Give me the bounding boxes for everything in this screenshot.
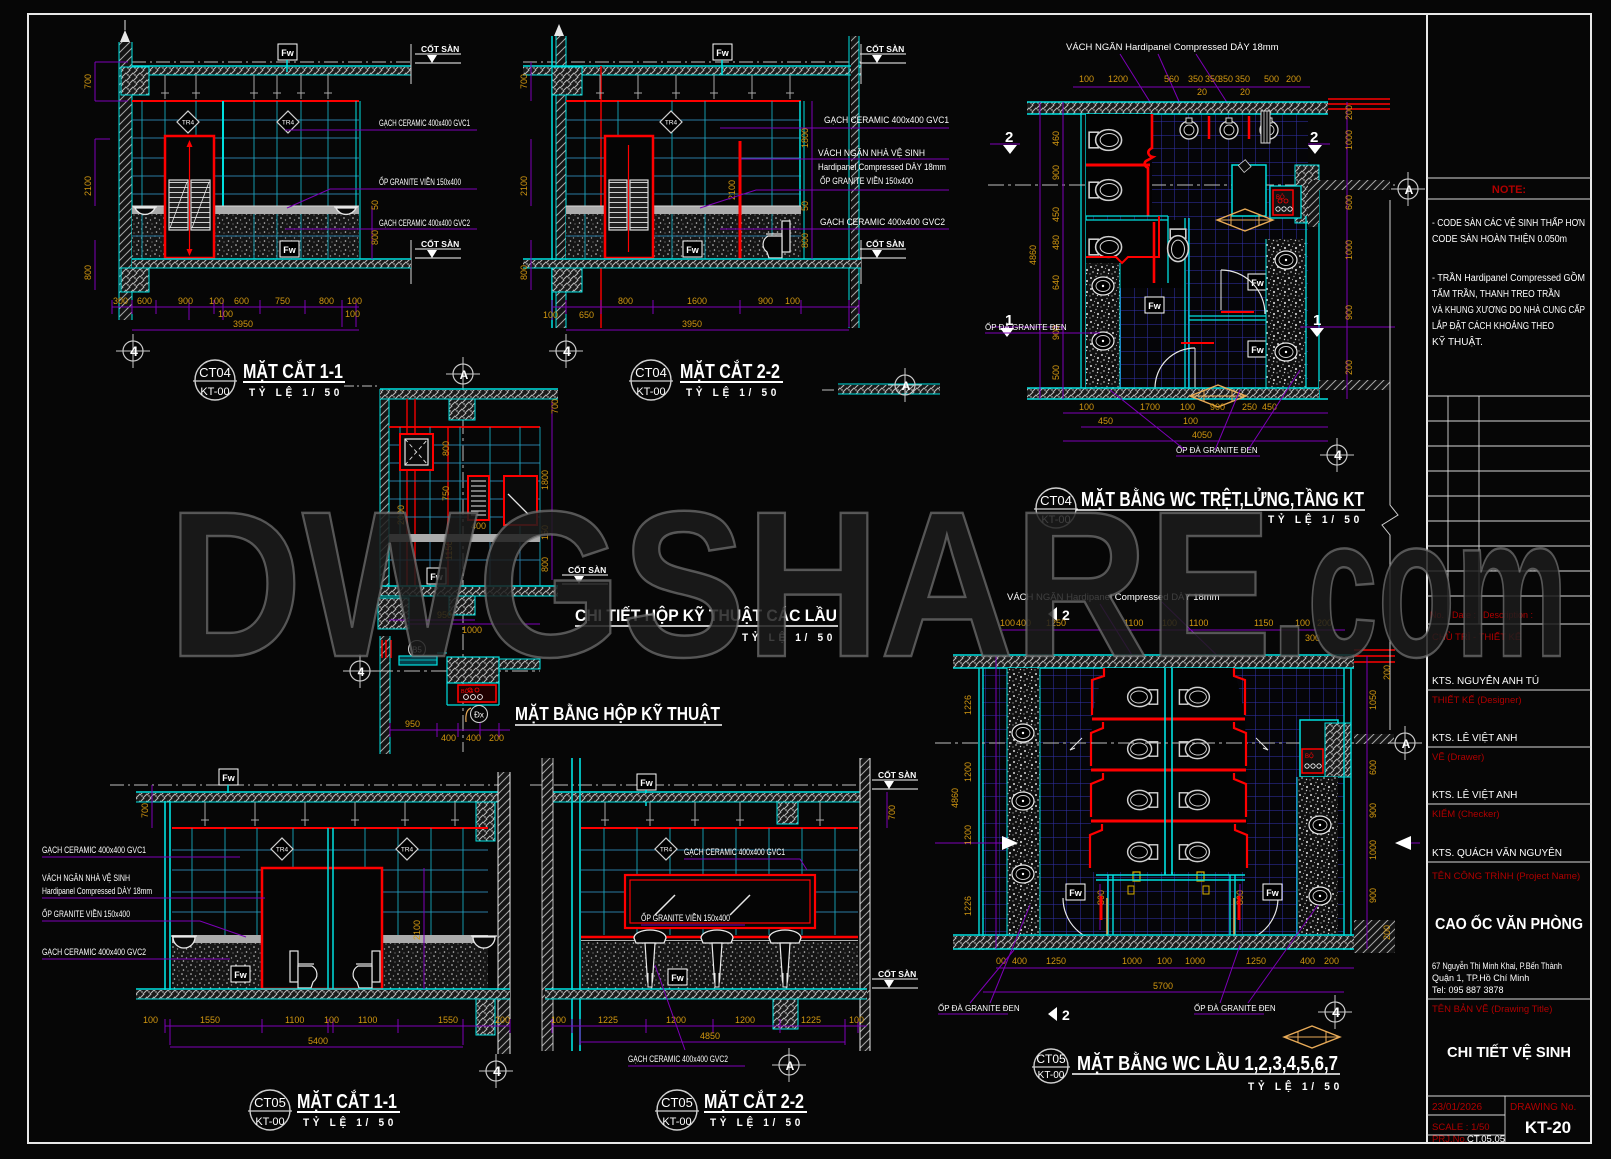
svg-text:700: 700: [140, 803, 150, 818]
svg-text:700: 700: [519, 74, 529, 89]
svg-text:ỐP ĐÀ GRANITE ĐEN: ỐP ĐÀ GRANITE ĐEN: [985, 322, 1067, 332]
svg-text:5700: 5700: [1153, 981, 1173, 991]
svg-text:400: 400: [1300, 956, 1315, 966]
svg-text:900: 900: [758, 296, 773, 306]
svg-text:PRJ.No.: PRJ.No.: [1432, 1134, 1467, 1145]
svg-text:100: 100: [1157, 956, 1172, 966]
svg-text:MẶT BẰNG HỘP KỸ THUẬT: MẶT BẰNG HỘP KỸ THUẬT: [515, 703, 720, 724]
svg-text:900: 900: [1344, 305, 1354, 320]
svg-text:200: 200: [1344, 360, 1354, 375]
svg-text:ỐP GRANITE VIỀN 150x400: ỐP GRANITE VIỀN 150x400: [820, 175, 913, 187]
svg-text:1000: 1000: [1368, 840, 1378, 860]
svg-text:100: 100: [785, 296, 800, 306]
svg-text:200: 200: [1382, 925, 1392, 940]
svg-text:250: 250: [1242, 402, 1257, 412]
svg-text:A: A: [902, 379, 911, 393]
svg-text:TỶ LỆ 1/ 50: TỶ LỆ 1/ 50: [1248, 1080, 1343, 1093]
svg-text:700: 700: [550, 399, 560, 414]
svg-text:BỘ: BỘ: [1305, 753, 1314, 760]
svg-text:20: 20: [1240, 87, 1250, 97]
svg-text:MẶT CẮT 1-1: MẶT CẮT 1-1: [243, 359, 343, 383]
svg-text:1200: 1200: [963, 825, 973, 845]
svg-text:500: 500: [1051, 365, 1061, 380]
svg-text:1800: 1800: [800, 128, 810, 148]
svg-text:1226: 1226: [963, 896, 973, 916]
svg-text:BỘ: BỘ: [1276, 194, 1285, 201]
svg-text:500: 500: [1264, 74, 1279, 84]
svg-text:KT-00: KT-00: [1038, 1070, 1065, 1081]
svg-text:900: 900: [1051, 165, 1061, 180]
svg-text:VÁCH NGĂN NHÀ VỆ SINH: VÁCH NGĂN NHÀ VỆ SINH: [42, 873, 130, 884]
svg-text:100: 100: [143, 1015, 158, 1025]
svg-text:900: 900: [1368, 803, 1378, 818]
svg-text:200: 200: [495, 1015, 510, 1025]
svg-text:2: 2: [1062, 1007, 1070, 1023]
svg-text:350: 350: [1218, 74, 1233, 84]
svg-text:VÁCH NGĂN Hardipanel Compresse: VÁCH NGĂN Hardipanel Compressed DÀY 18mm: [1066, 42, 1279, 53]
svg-text:KT-00: KT-00: [636, 386, 665, 398]
svg-text:450: 450: [1262, 402, 1277, 412]
svg-text:400: 400: [466, 733, 481, 743]
svg-text:800: 800: [83, 265, 93, 280]
svg-text:NOTE:: NOTE:: [1492, 184, 1526, 196]
svg-text:400: 400: [1012, 956, 1027, 966]
svg-text:GẠCH CERAMIC 400x400 GVC1: GẠCH CERAMIC 400x400 GVC1: [379, 118, 470, 129]
svg-text:1600: 1600: [687, 296, 707, 306]
svg-text:700: 700: [887, 805, 897, 820]
svg-text:VÀ KHUNG XƯƠNG DO NHÀ CUNG CẤP: VÀ KHUNG XƯƠNG DO NHÀ CUNG CẤP: [1432, 303, 1585, 316]
svg-text:ỐP GRANITE VIỀN 150x400: ỐP GRANITE VIỀN 150x400: [641, 912, 730, 924]
svg-text:ỐP GRANITE VIỀN 150x400: ỐP GRANITE VIỀN 150x400: [42, 908, 130, 920]
svg-text:A: A: [1405, 183, 1414, 197]
svg-text:GẠCH CERAMIC 400x400 GVC2: GẠCH CERAMIC 400x400 GVC2: [628, 1054, 728, 1065]
svg-text:900: 900: [1368, 888, 1378, 903]
svg-text:TẤM TRẦN, THANH TREO TRẦN: TẤM TRẦN, THANH TREO TRẦN: [1432, 287, 1560, 300]
svg-text:200: 200: [1324, 956, 1339, 966]
svg-text:100: 100: [347, 296, 362, 306]
svg-text:200: 200: [1344, 105, 1354, 120]
svg-text:480: 480: [1051, 235, 1061, 250]
svg-text:4860: 4860: [1028, 245, 1038, 265]
svg-text:ỐP GRANITE VIỀN 150x400: ỐP GRANITE VIỀN 150x400: [379, 176, 461, 188]
svg-text:Hardipanel Compressed DÀY 18mm: Hardipanel Compressed DÀY 18mm: [42, 886, 152, 897]
svg-text:560: 560: [1164, 74, 1179, 84]
svg-text:2100: 2100: [83, 176, 93, 196]
svg-text:100: 100: [218, 309, 233, 319]
svg-text:VÁCH NGĂN NHÀ VỆ SINH: VÁCH NGĂN NHÀ VỆ SINH: [818, 148, 925, 159]
svg-text:1250: 1250: [1046, 956, 1066, 966]
svg-text:100: 100: [209, 296, 224, 306]
svg-text:.com: .com: [1272, 476, 1568, 699]
svg-text:640: 640: [1051, 275, 1061, 290]
svg-text:4: 4: [493, 1063, 501, 1079]
svg-text:MẶT CẮT 2-2: MẶT CẮT 2-2: [680, 359, 780, 383]
svg-text:4: 4: [563, 343, 571, 359]
svg-text:TỶ LỆ 1/ 50: TỶ LỆ 1/ 50: [303, 1116, 397, 1129]
svg-text:4: 4: [130, 343, 138, 359]
svg-text:- TRẦN Hardipanel Compressed G: - TRẦN Hardipanel Compressed GỒM: [1432, 271, 1585, 284]
svg-text:GẠCH CERAMIC 400x400 GVC1: GẠCH CERAMIC 400x400 GVC1: [684, 847, 785, 858]
svg-text:800: 800: [618, 296, 633, 306]
svg-text:3950: 3950: [682, 319, 702, 329]
svg-text:650: 650: [579, 310, 594, 320]
svg-text:800: 800: [441, 441, 451, 456]
svg-text:CT.05.05: CT.05.05: [1467, 1134, 1505, 1145]
svg-text:ỐP ĐÀ GRANITE ĐEN: ỐP ĐÀ GRANITE ĐEN: [1194, 1003, 1276, 1013]
svg-text:A: A: [786, 1059, 795, 1073]
svg-text:KT-00: KT-00: [662, 1116, 691, 1128]
svg-text:KTS. LÊ VIỆT ANH: KTS. LÊ VIỆT ANH: [1432, 788, 1517, 801]
svg-text:KT-20: KT-20: [1525, 1118, 1571, 1137]
svg-text:100: 100: [345, 309, 360, 319]
svg-text:800: 800: [319, 296, 334, 306]
svg-text:1225: 1225: [801, 1015, 821, 1025]
svg-text:DWGSHARE: DWGSHARE: [168, 469, 1272, 701]
svg-text:600: 600: [137, 296, 152, 306]
svg-text:460: 460: [1051, 131, 1061, 146]
svg-text:100: 100: [543, 310, 558, 320]
svg-text:800: 800: [800, 233, 810, 248]
svg-text:600: 600: [1344, 195, 1354, 210]
svg-text:MẶT CẮT 2-2: MẶT CẮT 2-2: [704, 1089, 804, 1113]
svg-text:2100: 2100: [412, 920, 422, 940]
svg-text:- CODE SÀN CÁC VỆ SINH THẤP HƠ: - CODE SÀN CÁC VỆ SINH THẤP HƠN: [1432, 216, 1585, 229]
svg-text:450: 450: [1098, 416, 1113, 426]
svg-text:2100: 2100: [519, 176, 529, 196]
svg-text:TỶ LỆ 1/ 50: TỶ LỆ 1/ 50: [249, 386, 343, 399]
svg-text:800: 800: [519, 265, 529, 280]
svg-text:GẠCH CERAMIC 400x400 GVC2: GẠCH CERAMIC 400x400 GVC2: [820, 217, 945, 228]
svg-text:750: 750: [275, 296, 290, 306]
svg-text:KIỂM (Checker): KIỂM (Checker): [1432, 808, 1500, 820]
svg-text:CHI TIẾT VỆ SINH: CHI TIẾT VỆ SINH: [1447, 1043, 1571, 1061]
svg-text:1200: 1200: [735, 1015, 755, 1025]
svg-text:A: A: [460, 368, 469, 382]
svg-text:100: 100: [1079, 74, 1094, 84]
svg-text:100: 100: [1183, 416, 1198, 426]
svg-text:KT-00: KT-00: [255, 1116, 284, 1128]
svg-text:MẶT CẮT 1-1: MẶT CẮT 1-1: [297, 1089, 397, 1113]
svg-text:50: 50: [370, 200, 380, 210]
svg-text:4: 4: [1332, 1004, 1340, 1020]
svg-text:1250: 1250: [1246, 956, 1266, 966]
svg-text:3950: 3950: [233, 319, 253, 329]
svg-text:450: 450: [1051, 207, 1061, 222]
svg-text:TỶ LỆ 1/ 50: TỶ LỆ 1/ 50: [686, 386, 780, 399]
svg-text:A: A: [1402, 737, 1411, 751]
svg-text:DRAWING No.: DRAWING No.: [1510, 1102, 1576, 1113]
svg-text:1225: 1225: [598, 1015, 618, 1025]
svg-text:100: 100: [324, 1015, 339, 1025]
svg-text:300: 300: [113, 296, 128, 306]
svg-text:4860: 4860: [950, 788, 960, 808]
svg-text:200: 200: [1286, 74, 1301, 84]
svg-text:CT05: CT05: [1036, 1052, 1066, 1066]
svg-text:700: 700: [83, 74, 93, 89]
svg-text:900: 900: [178, 296, 193, 306]
svg-text:KỸ THUẬT.: KỸ THUẬT.: [1432, 335, 1483, 348]
svg-text:50: 50: [800, 201, 810, 211]
svg-text:Đx: Đx: [474, 711, 484, 720]
svg-text:67 Nguyễn Thị Minh Khai, P.Bến: 67 Nguyễn Thị Minh Khai, P.Bến Thành: [1432, 961, 1562, 971]
svg-text:950: 950: [405, 719, 420, 729]
svg-text:2: 2: [1005, 129, 1013, 146]
svg-text:CT04: CT04: [199, 365, 231, 380]
svg-text:1100: 1100: [285, 1015, 304, 1025]
svg-text:ỐP ĐÀ GRANITE ĐEN: ỐP ĐÀ GRANITE ĐEN: [938, 1003, 1020, 1013]
svg-text:4050: 4050: [1192, 430, 1212, 440]
svg-text:1200: 1200: [1108, 74, 1128, 84]
svg-text:900: 900: [1210, 402, 1225, 412]
svg-text:CT05: CT05: [661, 1095, 693, 1110]
svg-text:GẠCH CERAMIC 400x400 GVC2: GẠCH CERAMIC 400x400 GVC2: [379, 218, 470, 229]
svg-text:Tel: 095 887 3878: Tel: 095 887 3878: [1432, 985, 1504, 995]
svg-text:1: 1: [1313, 312, 1321, 329]
svg-text:200: 200: [489, 733, 504, 743]
svg-text:1700: 1700: [1140, 402, 1160, 412]
svg-text:100: 100: [849, 1015, 864, 1025]
svg-text:100: 100: [1079, 402, 1094, 412]
svg-text:1550: 1550: [438, 1015, 458, 1025]
svg-text:CAO ỐC VĂN PHÒNG: CAO ỐC VĂN PHÒNG: [1435, 913, 1583, 933]
svg-text:5400: 5400: [308, 1036, 328, 1046]
svg-text:TÊN BẢN VẼ (Drawing Title): TÊN BẢN VẼ (Drawing Title): [1432, 1003, 1552, 1015]
svg-text:400: 400: [441, 733, 456, 743]
svg-text:1550: 1550: [200, 1015, 220, 1025]
svg-text:MẶT BẰNG WC LẦU 1,2,3,4,5,6,7: MẶT BẰNG WC LẦU 1,2,3,4,5,6,7: [1077, 1051, 1338, 1075]
svg-text:CT04: CT04: [635, 365, 667, 380]
svg-text:600: 600: [234, 296, 249, 306]
svg-text:350: 350: [1235, 74, 1250, 84]
svg-text:100: 100: [1180, 402, 1195, 412]
svg-text:1000: 1000: [1344, 240, 1354, 260]
svg-text:1100: 1100: [358, 1015, 377, 1025]
svg-text:Hardipanel Compressed DÀY 18mm: Hardipanel Compressed DÀY 18mm: [818, 162, 946, 173]
svg-text:TỶ LỆ 1/ 50: TỶ LỆ 1/ 50: [710, 1116, 804, 1129]
svg-text:GẠCH CERAMIC 400x400 GVC2: GẠCH CERAMIC 400x400 GVC2: [42, 947, 146, 958]
svg-text:TÊN CÔNG TRÌNH (Project Name): TÊN CÔNG TRÌNH (Project Name): [1432, 871, 1580, 882]
svg-text:800: 800: [370, 230, 380, 245]
svg-text:GẠCH CERAMIC 400x400 GVC1: GẠCH CERAMIC 400x400 GVC1: [824, 115, 949, 126]
svg-text:KTS. LÊ VIỆT ANH: KTS. LÊ VIỆT ANH: [1432, 731, 1517, 744]
svg-text:1000: 1000: [1185, 956, 1205, 966]
svg-text:1200: 1200: [963, 762, 973, 782]
svg-text:Quận 1, TP.Hồ Chí Minh: Quận 1, TP.Hồ Chí Minh: [1432, 973, 1529, 983]
svg-text:CODE SÀN HOÀN THIỆN 0.050m: CODE SÀN HOÀN THIỆN 0.050m: [1432, 232, 1567, 245]
svg-text:1000: 1000: [1122, 956, 1142, 966]
svg-text:4850: 4850: [700, 1031, 720, 1041]
svg-text:CT05: CT05: [254, 1095, 286, 1110]
svg-text:GẠCH CERAMIC 400x400 GVC1: GẠCH CERAMIC 400x400 GVC1: [42, 845, 146, 856]
svg-text:4: 4: [1334, 447, 1342, 463]
svg-text:350: 350: [1188, 74, 1203, 84]
svg-text:1000: 1000: [1344, 130, 1354, 150]
svg-text:2: 2: [1310, 129, 1318, 146]
svg-text:600: 600: [1368, 760, 1378, 775]
svg-text:KT-00: KT-00: [200, 386, 229, 398]
svg-text:SCALE : 1/50: SCALE : 1/50: [1432, 1122, 1490, 1133]
svg-text:23/01/2026: 23/01/2026: [1432, 1102, 1482, 1113]
svg-text:LẮP ĐẶT CÁCH KHOẢNG THEO: LẮP ĐẶT CÁCH KHOẢNG THEO: [1432, 319, 1554, 332]
svg-text:VẼ (Drawer): VẼ (Drawer): [1432, 752, 1484, 763]
svg-text:100: 100: [551, 1015, 566, 1025]
svg-text:KTS. QUÁCH VĂN NGUYÊN: KTS. QUÁCH VĂN NGUYÊN: [1432, 846, 1562, 859]
svg-text:20: 20: [1197, 87, 1207, 97]
